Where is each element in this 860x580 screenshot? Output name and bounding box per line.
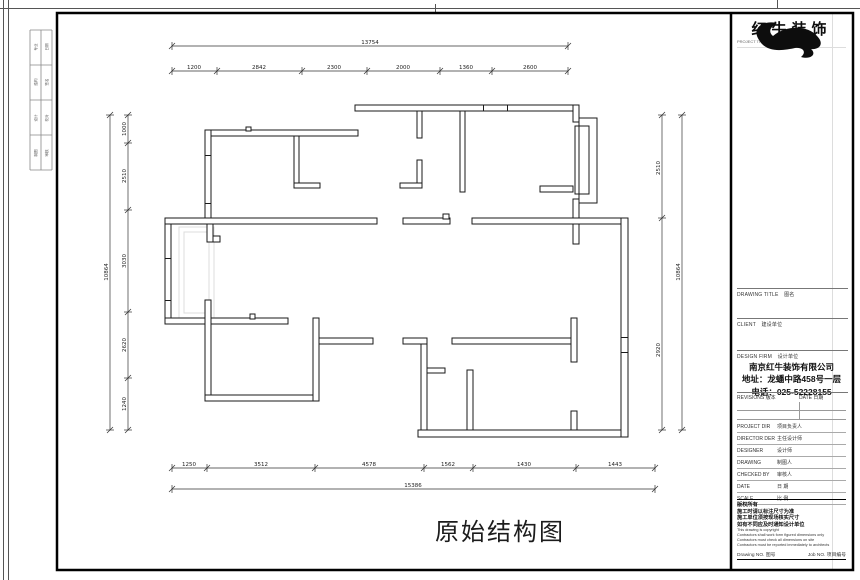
wall-segment — [417, 111, 422, 138]
door-notch — [246, 127, 251, 131]
wall-segment — [467, 370, 473, 430]
dim-right-overall: 10864 — [676, 263, 682, 281]
notes-block: 版权所有 施工时请以标注尺寸为准 施工单位须按现场核实尺寸 如有不同应及时通知设… — [737, 499, 846, 560]
wall-segment — [427, 368, 445, 373]
wall-segment — [452, 338, 573, 344]
tb-rule — [737, 318, 848, 319]
bull-logo-icon — [737, 18, 846, 64]
pers-en: CHECKED BY — [737, 472, 777, 478]
doc-numbers-row: Drawing NO. 图号 Job NO. 项目编号 — [737, 548, 846, 558]
pers-en: DESIGNER — [737, 448, 777, 454]
wall-segment — [294, 136, 299, 186]
drawing-no-label: Drawing NO. 图号 — [737, 551, 775, 558]
pers-zh: 设计师 — [777, 447, 792, 454]
wall-segment — [165, 224, 171, 323]
wall-segment — [294, 183, 320, 188]
dim-top-seg-3: 2000 — [396, 65, 410, 71]
pers-zh: 项目负责人 — [777, 423, 802, 430]
dim-left-seg-3: 2620 — [122, 338, 128, 352]
personnel-row: PROJECT DIR项目负责人 — [737, 421, 846, 433]
job-no-en: Job NO. — [808, 553, 826, 558]
wall-segment — [421, 344, 427, 432]
reg-label: 审核 — [44, 149, 49, 157]
dim-top-overall: 13754 — [361, 40, 379, 46]
dim-bottom-seg-2: 4578 — [362, 462, 376, 468]
door-notch — [250, 314, 255, 319]
pers-zh: 制图人 — [777, 459, 792, 466]
wall-segment — [418, 430, 628, 437]
drawing-sheet: 专业 日期 结构 签名 设计 校对 制图 审核 — [0, 0, 860, 580]
bull-logo-path — [756, 22, 820, 57]
dim-right-seg-0: 2510 — [656, 161, 662, 175]
section-drawing-title: DRAWING TITLE 图名 — [737, 291, 846, 298]
wall-segment — [355, 105, 579, 111]
wall-segment — [313, 318, 319, 401]
wall-segment — [571, 318, 577, 362]
sheet-border — [57, 13, 853, 570]
floor-plan-walls — [165, 105, 628, 437]
reg-label: 校对 — [44, 114, 49, 122]
wall-segment — [165, 318, 288, 324]
tb-rule — [737, 392, 848, 393]
tb-rule — [737, 288, 848, 289]
section-label-zh: 图名 — [784, 292, 794, 298]
personnel-table: PROJECT DIR项目负责人 DIRECTOR DER主任设计师 DESIG… — [737, 421, 846, 505]
dim-top-seg-0: 1200 — [187, 65, 201, 71]
dim-bottom-overall: 15386 — [404, 483, 422, 489]
pers-zh: 主任设计师 — [777, 435, 802, 442]
company-name: 南京红牛装饰有限公司 — [737, 361, 846, 373]
pers-en: DRAWING — [737, 460, 777, 466]
wall-segment — [403, 338, 427, 344]
drawing-title: 原始结构图 — [400, 512, 600, 547]
wall-segment — [571, 411, 577, 430]
dim-left-seg-0: 1000 — [122, 122, 128, 136]
reg-label: 设计 — [33, 114, 38, 122]
wall-segment — [460, 111, 465, 192]
wall-segment — [400, 183, 422, 188]
section-label-zh: 设计单位 — [778, 354, 799, 360]
dim-top-seg-4: 1360 — [459, 65, 473, 71]
wall-segment — [205, 395, 319, 401]
plan-canvas: 专业 日期 结构 签名 设计 校对 制图 审核 — [0, 0, 860, 580]
dim-bottom-seg-5: 1443 — [608, 462, 622, 468]
logo-block: 红牛装饰 PROJECT TITLE 项目名称 — [737, 18, 846, 48]
wall-segment — [319, 338, 373, 344]
revisions-date-label: DATE 日期 — [799, 394, 823, 401]
dim-left-overall: 10864 — [104, 263, 110, 281]
company-address: 地址：龙蟠中路458号一层 — [737, 373, 846, 385]
revisions-label: REVISIONS 版本 — [737, 394, 799, 401]
wall-segment — [540, 186, 573, 192]
section-label-en: CLIENT — [737, 322, 756, 328]
dim-right-seg-1: 2920 — [656, 343, 662, 357]
dim-bottom-seg-3: 1562 — [441, 462, 455, 468]
section-label-en: DRAWING TITLE — [737, 292, 779, 298]
wall-segment — [472, 218, 627, 224]
dim-top-seg-1: 2842 — [252, 65, 266, 71]
dim-bottom-seg-0: 1250 — [182, 462, 196, 468]
pers-en: DATE — [737, 484, 777, 490]
job-no-zh: 项目编号 — [827, 553, 846, 558]
section-client: CLIENT 建设单位 — [737, 321, 846, 328]
personnel-row: DIRECTOR DER主任设计师 — [737, 433, 846, 445]
section-label-en: DESIGN FIRM — [737, 354, 772, 360]
wall-segment — [205, 130, 358, 136]
dim-left-seg-2: 3030 — [122, 254, 128, 268]
dim-left-seg-4: 1240 — [122, 397, 128, 411]
pers-zh: 日 期 — [777, 483, 788, 490]
personnel-row: DATE日 期 — [737, 481, 846, 493]
wall-segment — [621, 218, 628, 437]
dim-top-seg-5: 2600 — [523, 65, 537, 71]
tb-rule — [737, 350, 848, 351]
wall-segment — [205, 130, 211, 222]
wall-segment — [205, 300, 211, 400]
section-design-firm: DESIGN FIRM 设计单位 — [737, 353, 846, 360]
pers-en: DIRECTOR DER — [737, 436, 777, 442]
wall-segment — [165, 218, 377, 224]
revisions-table — [737, 402, 846, 420]
reg-label: 结构 — [33, 78, 38, 86]
reg-label: 专业 — [33, 43, 38, 51]
wall-segment — [207, 224, 213, 242]
bay-window — [575, 118, 597, 203]
drawing-no-zh: 图号 — [766, 553, 776, 558]
pers-en: PROJECT DIR — [737, 424, 777, 430]
drawing-no-en: Drawing NO. — [737, 553, 764, 558]
wall-segment — [213, 236, 220, 242]
reg-label: 日期 — [44, 43, 49, 51]
window-marks — [165, 105, 628, 353]
job-no-label: Job NO. 项目编号 — [808, 551, 846, 558]
revisions-zh: 版本 — [766, 395, 776, 401]
personnel-row: DESIGNER设计师 — [737, 445, 846, 457]
revisions-header: REVISIONS 版本 DATE 日期 — [737, 394, 846, 401]
door-notch — [443, 214, 449, 219]
revision-row — [737, 411, 846, 420]
reg-label: 签名 — [44, 78, 49, 86]
date-zh: 日期 — [813, 395, 823, 401]
pers-zh: 审核人 — [777, 471, 792, 478]
personnel-row: CHECKED BY审核人 — [737, 469, 846, 481]
revision-col-divider — [799, 402, 800, 420]
dim-bottom-seg-1: 3512 — [254, 462, 268, 468]
revisions-en: REVISIONS — [737, 395, 764, 401]
dim-bottom-seg-4: 1430 — [517, 462, 531, 468]
dim-top-seg-2: 2300 — [327, 65, 341, 71]
revision-row — [737, 402, 846, 411]
dim-left-seg-1: 2510 — [122, 169, 128, 183]
reg-label: 制图 — [33, 149, 38, 157]
personnel-row: DRAWING制图人 — [737, 457, 846, 469]
date-en: DATE — [799, 395, 812, 401]
section-label-zh: 建设单位 — [761, 322, 782, 328]
wall-segment — [573, 105, 579, 122]
